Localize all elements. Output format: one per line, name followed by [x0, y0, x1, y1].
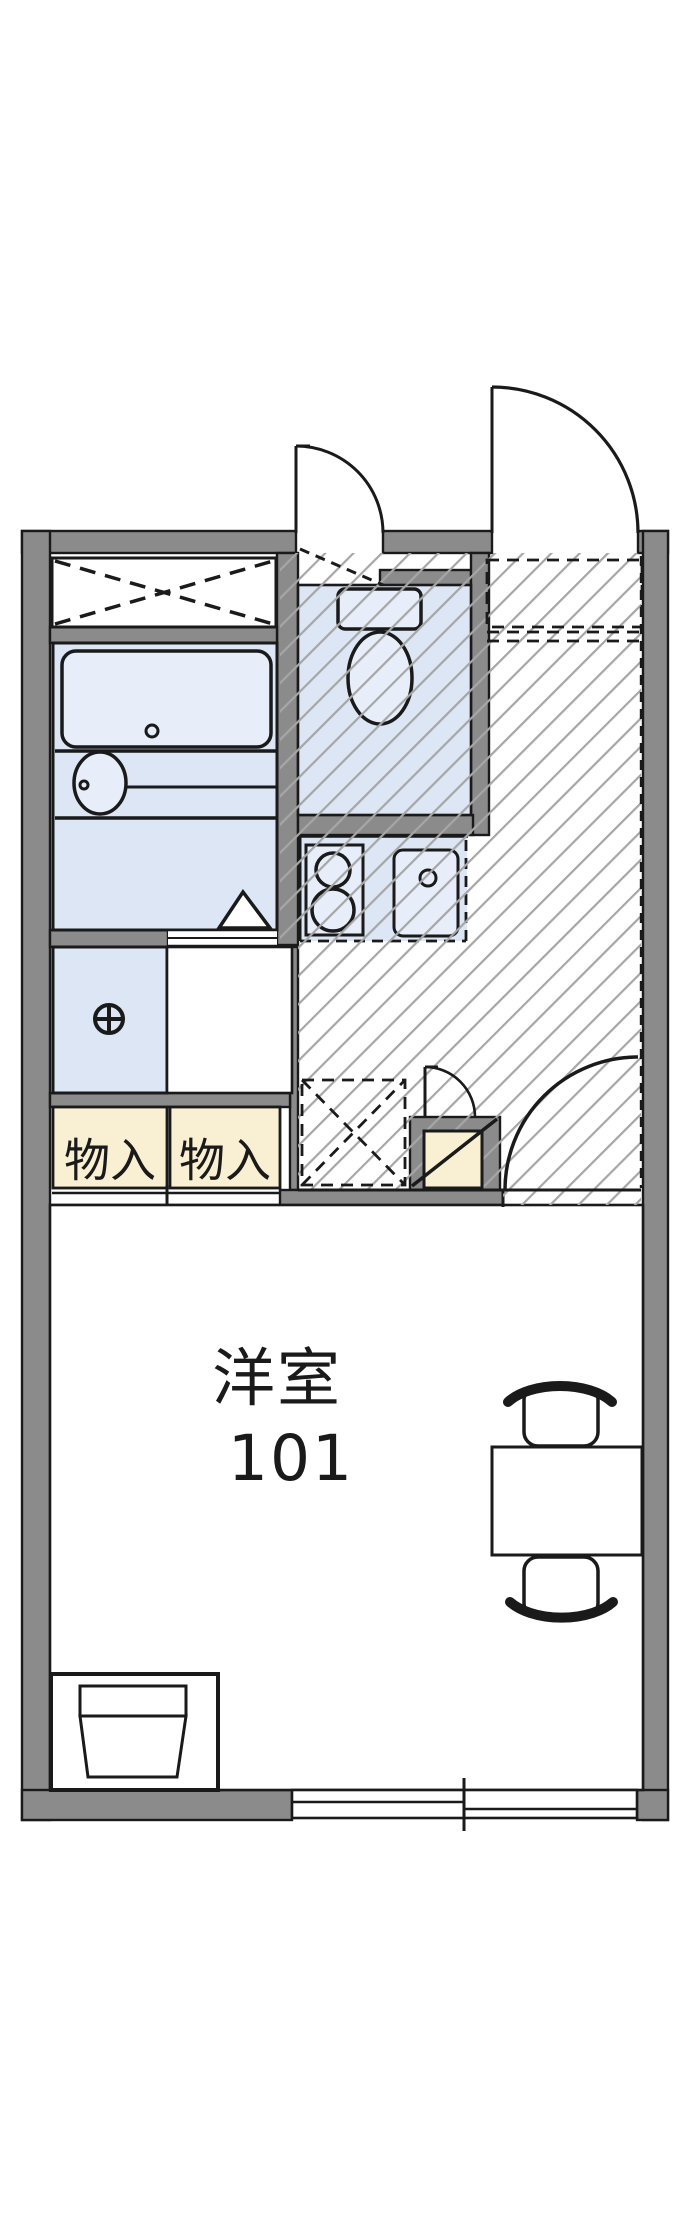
wall-left [22, 531, 50, 1820]
washing-machine-space [53, 947, 167, 1093]
tv-stand [51, 1674, 218, 1790]
changing-room [167, 947, 292, 1093]
bathtub [62, 651, 271, 747]
wall-xbox-bathroom [50, 627, 277, 643]
main-room-number-label: 101 [228, 1422, 354, 1495]
floor-plan-svg: 物入 物入 洋室 101 [0, 0, 700, 2214]
main-room-type-label: 洋室 [212, 1342, 342, 1415]
closet-right: 物入 [170, 1107, 280, 1188]
wall-bottom-left [22, 1790, 292, 1820]
closet-right-label: 物入 [179, 1134, 271, 1188]
wall-right [643, 531, 668, 1820]
storage-cross-box [52, 558, 276, 627]
main-room: 洋室 101 [50, 1190, 643, 1790]
bathroom [53, 643, 277, 947]
chair-top-seat [524, 1386, 598, 1446]
wall-mainroom-top [280, 1190, 503, 1205]
wall-bathroom-bottom [50, 930, 168, 947]
corridor-hatch-area [280, 553, 641, 1205]
wall-bottom-right [637, 1790, 668, 1820]
wall-above-closets [50, 1093, 290, 1107]
closet-left: 物入 [53, 1107, 167, 1188]
chair-bottom-seat [524, 1557, 598, 1617]
table [492, 1447, 642, 1555]
floor-plan-page: 物入 物入 洋室 101 [0, 0, 700, 2214]
wall-top-middle [383, 531, 492, 553]
wall-top-left [22, 531, 296, 553]
closet-left-label: 物入 [64, 1134, 156, 1188]
